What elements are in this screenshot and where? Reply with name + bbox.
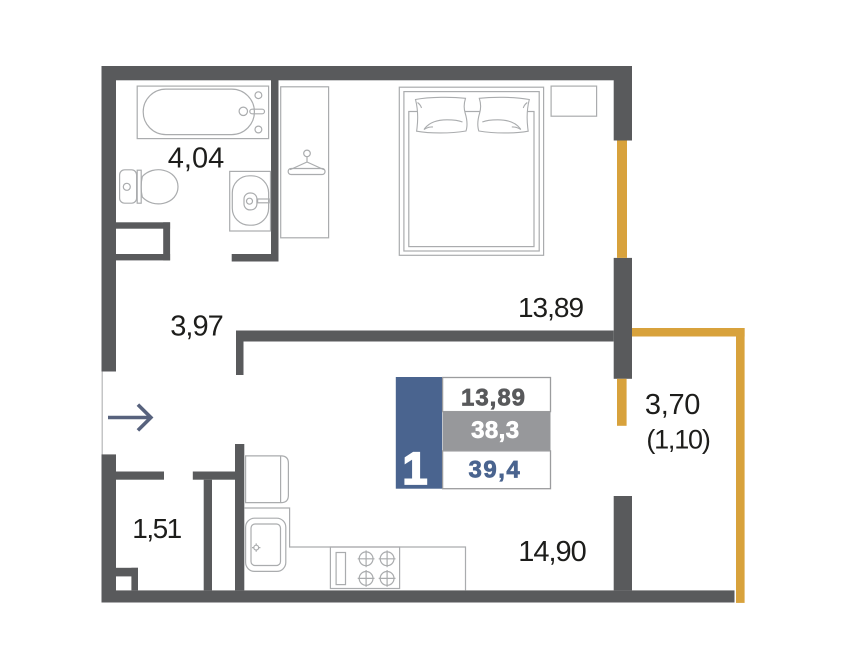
svg-text:3,97: 3,97 [170, 311, 222, 343]
svg-text:1: 1 [403, 443, 428, 494]
svg-text:14,90: 14,90 [518, 536, 586, 568]
svg-text:39,4: 39,4 [469, 456, 522, 483]
svg-text:38,3: 38,3 [471, 417, 519, 444]
svg-text:1,51: 1,51 [132, 513, 181, 544]
svg-text:13,89: 13,89 [518, 292, 583, 323]
svg-text:(1,10): (1,10) [646, 425, 710, 455]
svg-text:13,89: 13,89 [461, 385, 526, 412]
svg-text:3,70: 3,70 [645, 389, 700, 421]
svg-text:4,04: 4,04 [168, 143, 224, 175]
